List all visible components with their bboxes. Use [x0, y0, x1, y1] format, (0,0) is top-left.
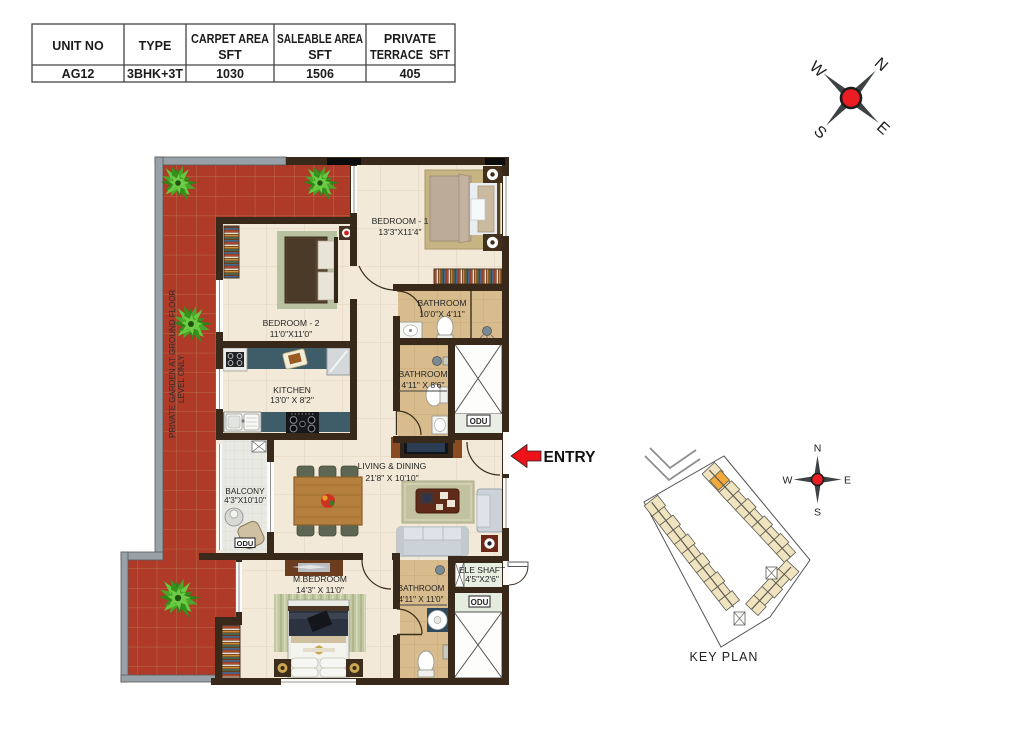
svg-text:BATHROOM: BATHROOM	[398, 584, 445, 593]
svg-text:4'5"X2'6": 4'5"X2'6"	[465, 574, 499, 584]
svg-text:TYPE: TYPE	[139, 39, 172, 53]
svg-text:1030: 1030	[216, 67, 244, 81]
svg-text:KEY PLAN: KEY PLAN	[690, 650, 759, 664]
svg-text:13'0" X 8'2": 13'0" X 8'2"	[270, 395, 314, 405]
svg-text:PRIVATE: PRIVATE	[384, 32, 436, 46]
svg-text:S: S	[814, 507, 821, 519]
svg-text:E: E	[873, 119, 892, 139]
svg-text:21'8" X 10'10": 21'8" X 10'10"	[365, 473, 418, 483]
svg-text:ODU: ODU	[237, 539, 254, 548]
svg-text:ENTRY: ENTRY	[544, 449, 597, 466]
svg-text:10'0"X 4'11": 10'0"X 4'11"	[419, 309, 465, 319]
svg-text:3BHK+3T: 3BHK+3T	[127, 67, 183, 81]
svg-text:W: W	[806, 58, 829, 81]
svg-text:BATHROOM: BATHROOM	[417, 298, 466, 308]
svg-text:KITCHEN: KITCHEN	[273, 385, 311, 395]
svg-text:BEDROOM - 1: BEDROOM - 1	[372, 216, 429, 226]
svg-text:13'3"X11'4": 13'3"X11'4"	[378, 227, 421, 237]
svg-text:E: E	[844, 475, 851, 487]
svg-text:SALEABLE AREA: SALEABLE AREA	[277, 32, 363, 46]
svg-text:N: N	[871, 55, 891, 75]
svg-text:BALCONY: BALCONY	[225, 487, 265, 496]
svg-text:11'0"X11'0": 11'0"X11'0"	[270, 329, 313, 339]
svg-text:LIVING & DINING: LIVING & DINING	[358, 461, 427, 471]
svg-text:BATHROOM: BATHROOM	[398, 369, 447, 379]
svg-text:SFT: SFT	[218, 48, 242, 62]
svg-text:W: W	[783, 475, 793, 487]
svg-text:BEDROOM - 2: BEDROOM - 2	[263, 318, 320, 328]
svg-text:405: 405	[400, 67, 421, 81]
svg-text:UNIT NO: UNIT NO	[52, 39, 104, 53]
svg-text:ODU: ODU	[470, 417, 488, 426]
svg-text:N: N	[814, 443, 822, 455]
svg-text:1506: 1506	[306, 67, 334, 81]
svg-text:SFT: SFT	[308, 48, 332, 62]
svg-text:PRIVATE GARDEN AT GROUND FLOOR: PRIVATE GARDEN AT GROUND FLOOR	[168, 289, 177, 438]
svg-text:4'3"X10'10": 4'3"X10'10"	[224, 496, 266, 505]
svg-text:S: S	[810, 123, 829, 143]
svg-text:4'11" X 8'6": 4'11" X 8'6"	[401, 380, 444, 390]
svg-text:4'11" X 11'0": 4'11" X 11'0"	[398, 595, 443, 604]
svg-text:ODU: ODU	[471, 598, 489, 607]
svg-text:14'3" X 11'0": 14'3" X 11'0"	[296, 585, 344, 595]
svg-text:M.BEDROOM: M.BEDROOM	[293, 574, 347, 584]
svg-text:CARPET AREA: CARPET AREA	[191, 32, 269, 46]
svg-text:LEVEL ONLY: LEVEL ONLY	[177, 354, 186, 403]
svg-text:AG12: AG12	[62, 67, 95, 81]
svg-text:TERRACE SFT: TERRACE SFT	[370, 48, 450, 62]
